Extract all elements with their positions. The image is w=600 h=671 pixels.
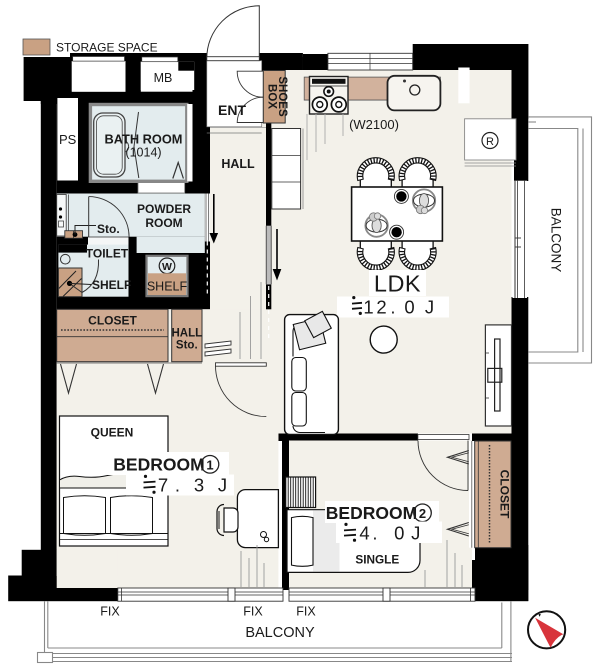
svg-text:HALL: HALL: [221, 157, 255, 171]
svg-text:TOILET: TOILET: [86, 247, 129, 261]
svg-text:SINGLE: SINGLE: [355, 553, 399, 567]
svg-text:FIX: FIX: [296, 605, 316, 619]
svg-text:W: W: [162, 261, 172, 273]
svg-text:J: J: [218, 475, 227, 496]
svg-text:CLOSET: CLOSET: [88, 314, 137, 328]
svg-text:QUEEN: QUEEN: [91, 426, 134, 440]
svg-text:SHELF: SHELF: [92, 278, 131, 292]
svg-text:7: 7: [158, 475, 168, 496]
svg-text:.: .: [175, 475, 180, 496]
svg-text:Sto.: Sto.: [176, 340, 198, 352]
svg-text:POWDER: POWDER: [137, 202, 191, 216]
svg-text:BEDROOM: BEDROOM: [113, 455, 204, 475]
svg-text:STORAGE SPACE: STORAGE SPACE: [56, 41, 158, 55]
svg-text:(1014): (1014): [125, 146, 161, 160]
svg-text:MB: MB: [154, 71, 173, 85]
svg-text:1: 1: [206, 457, 213, 472]
svg-text:3: 3: [194, 475, 204, 496]
svg-text:4: 4: [359, 523, 369, 544]
svg-text:BEDROOM: BEDROOM: [326, 503, 417, 523]
svg-text:HALL: HALL: [171, 328, 202, 340]
svg-text:BATH ROOM: BATH ROOM: [105, 132, 183, 147]
svg-text:ENT: ENT: [218, 102, 246, 118]
svg-text:BOX: BOX: [266, 84, 278, 109]
svg-text:J: J: [425, 297, 434, 318]
svg-text:2: 2: [376, 297, 386, 318]
svg-text:1: 1: [363, 297, 373, 318]
svg-text:R: R: [486, 136, 494, 148]
svg-text:CLOSET: CLOSET: [498, 470, 512, 519]
svg-text:BALCONY: BALCONY: [245, 625, 315, 641]
svg-text:LDK: LDK: [374, 271, 421, 297]
svg-text:0: 0: [394, 523, 404, 544]
svg-text:.: .: [372, 523, 377, 544]
svg-text:2: 2: [419, 506, 426, 521]
svg-text:(W2100): (W2100): [349, 117, 399, 132]
svg-text:ROOM: ROOM: [145, 216, 182, 230]
svg-text:PS: PS: [59, 132, 77, 147]
svg-text:Sto.: Sto.: [97, 222, 120, 236]
svg-text:.: .: [390, 297, 395, 318]
svg-text:FIX: FIX: [100, 605, 120, 619]
svg-text:J: J: [411, 523, 420, 544]
svg-text:BALCONY: BALCONY: [549, 208, 564, 273]
svg-text:FIX: FIX: [243, 605, 263, 619]
svg-text:SHELF: SHELF: [147, 280, 188, 294]
svg-text:0: 0: [404, 297, 414, 318]
